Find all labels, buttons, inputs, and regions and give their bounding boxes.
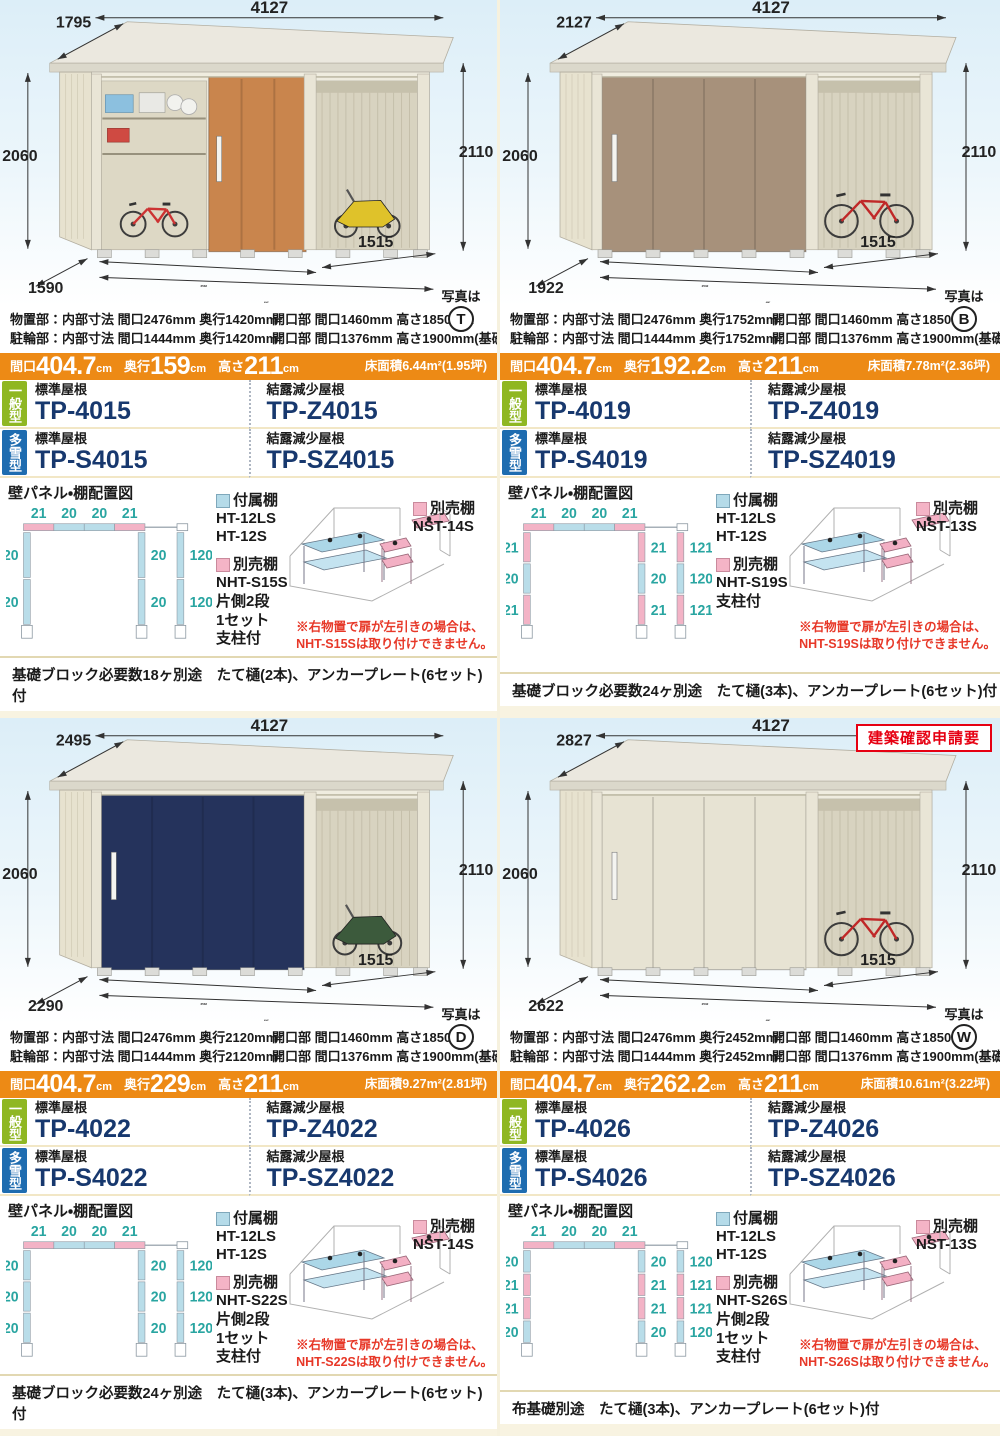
snow-type-badge: 多雪型 (2, 1148, 27, 1193)
optional-shelf-row: 別売棚 (716, 1274, 812, 1292)
panel-layout-diagram: 21202021212021212021121120121 (506, 504, 712, 654)
panel-layout-diagram: 2120202120202020120120 (6, 504, 212, 654)
pink-swatch-icon (916, 1220, 930, 1234)
svg-text:21: 21 (506, 1278, 519, 1294)
spec-block: 物置部：内部寸法 間口2476mm 奥行1420mm開口部 間口1460mm 高… (0, 306, 497, 351)
spec-block: 物置部：内部寸法 間口2476mm 奥行2120mm開口部 間口1460mm 高… (0, 1024, 497, 1069)
snow-type-badge: 多雪型 (502, 430, 527, 475)
depth-label: 奥行 (624, 1074, 650, 1096)
svg-text:20: 20 (651, 1254, 667, 1270)
svg-text:120: 120 (190, 1258, 212, 1274)
optional-side-shelf-legend: 別売棚 NST-13S (916, 500, 996, 537)
floor-area: 床面積6.44m²(1.95坪) (365, 355, 487, 378)
shed-illustration: 41272495206021102532404715152290 (0, 718, 497, 1024)
included-shelf-row: 付属棚 (216, 1210, 312, 1228)
model-snow-dew: 結露減少屋根TP-SZ4015 (249, 429, 498, 478)
svg-text:121: 121 (690, 1301, 712, 1317)
depth-label: 奥行 (624, 356, 650, 378)
svg-text:2532: 2532 (200, 284, 207, 288)
svg-text:21: 21 (531, 505, 547, 521)
optional-shelf-row: 別売棚 (216, 556, 312, 574)
width-unit: cm (596, 1081, 612, 1096)
svg-text:20: 20 (92, 1223, 108, 1239)
svg-text:1515: 1515 (358, 952, 394, 969)
svg-text:4127: 4127 (752, 718, 790, 735)
included-shelf-label: 付属棚 (733, 1210, 778, 1228)
general-type-badge: 一般型 (502, 1099, 527, 1144)
shelf-legend: 付属棚 HT-12LS HT-12S 別売棚 NHT-S19S支柱付 別売棚 N… (716, 480, 996, 656)
shelf-code: HT-12S (216, 528, 312, 547)
config-section: 壁パネル・棚配置図 21202021202020202020120120120 … (0, 1196, 497, 1374)
model-code: TP-4015 (35, 398, 131, 424)
svg-text:121: 121 (690, 1278, 712, 1294)
height-label: 高さ (738, 356, 764, 378)
roof-type-label: 標準屋根 (35, 383, 131, 398)
floor-area: 床面積7.78m²(2.36坪) (868, 355, 990, 378)
svg-text:4047: 4047 (264, 301, 269, 304)
svg-text:2110: 2110 (962, 862, 997, 879)
legend-line: 1セット (716, 1330, 812, 1349)
size-bar: 間口404.7cm 奥行192.2cm 高さ211cm 床面積7.78m²(2.… (500, 353, 1000, 380)
height-unit: cm (283, 1081, 299, 1096)
model-code: TP-SZ4026 (768, 1165, 896, 1191)
roof-type-label: 結露減少屋根 (768, 383, 879, 398)
config-section: 壁パネル・棚配置図 212020212021212020212120120121… (500, 1196, 1000, 1374)
spec-parking-opening: 開口部 間口1376mm 高さ1900mm(基礎天) (272, 330, 500, 349)
svg-text:120: 120 (690, 1324, 712, 1340)
svg-text:21: 21 (506, 602, 519, 618)
optional-shelf-row: 別売棚 (716, 556, 812, 574)
svg-text:2060: 2060 (2, 866, 38, 883)
svg-text:20: 20 (6, 595, 19, 611)
svg-text:4047: 4047 (766, 301, 771, 304)
pink-swatch-icon (413, 502, 427, 516)
svg-text:20: 20 (506, 1254, 519, 1270)
photo-reference: 写真は W (938, 1004, 990, 1050)
model-code: TP-S4019 (535, 447, 648, 473)
spec-block: 物置部：内部寸法 間口2476mm 奥行2452mm開口部 間口1460mm 高… (500, 1024, 1000, 1069)
legend-line: NHT-S22S (216, 1292, 312, 1311)
spec-line-storage: 物置部：内部寸法 間口2476mm 奥行2452mm開口部 間口1460mm 高… (510, 1029, 994, 1048)
photo-ref-label: 写真は (435, 286, 487, 305)
svg-text:20: 20 (592, 1223, 608, 1239)
roof-type-label: 結露減少屋根 (267, 432, 395, 447)
svg-text:2495: 2495 (56, 733, 92, 750)
installation-warning: ※右物置で扉が左引きの場合は、 NHT-S26Sは取り付けできません。 (799, 1337, 996, 1372)
pink-swatch-icon (413, 1220, 427, 1234)
shelf-code: NST-13S (916, 1236, 996, 1255)
spec-storage-inner: 物置部：内部寸法 間口2476mm 奥行1420mm (10, 311, 272, 330)
spec-line-parking: 駐輪部：内部寸法 間口1444mm 奥行2452mm開口部 間口1376mm 高… (510, 1048, 994, 1067)
svg-text:21: 21 (651, 602, 667, 618)
included-shelf-row: 付属棚 (716, 492, 812, 510)
svg-text:120: 120 (690, 1254, 712, 1270)
shelf-code: NST-14S (413, 518, 493, 537)
svg-text:2532: 2532 (702, 284, 709, 288)
product-panel-tp4019: 41272127206021102532404715151922 写真は B 物… (500, 0, 1000, 718)
svg-text:120: 120 (690, 571, 712, 587)
product-photo: 41272127206021102532404715151922 写真は B (500, 0, 1000, 306)
diagram-title: 壁パネル・棚配置図 (506, 480, 716, 504)
general-type-badge: 一般型 (502, 381, 527, 426)
model-code: TP-S4022 (35, 1165, 148, 1191)
legend-line: NHT-S19S (716, 574, 812, 593)
diagram-title: 壁パネル・棚配置図 (6, 1198, 216, 1222)
foundation-note: 基礎ブロック必要数24ヶ別途 たて樋(3本)、アンカープレート(6セット)付 (0, 1374, 497, 1436)
shelf-legend: 付属棚 HT-12LS HT-12S 別売棚 NHT-S22S片側2段1セット支… (216, 1198, 493, 1374)
spec-parking-inner: 駐輪部：内部寸法 間口1444mm 奥行2120mm (10, 1048, 272, 1067)
svg-text:20: 20 (6, 1320, 19, 1336)
svg-text:4127: 4127 (251, 0, 289, 17)
product-panel-tp4026: 41272827206021102532404715152622 建築確認申請要… (500, 718, 1000, 1436)
optional-side-label: 別売棚 (933, 500, 978, 518)
svg-text:20: 20 (92, 505, 108, 521)
svg-text:21: 21 (506, 1301, 519, 1317)
model-general-standard: 一般型 標準屋根TP-4015 (0, 380, 249, 429)
shed-illustration: 41272127206021102532404715151922 (500, 0, 1000, 306)
spec-parking-inner: 駐輪部：内部寸法 間口1444mm 奥行2452mm (510, 1048, 772, 1067)
height-value: 211 (764, 1073, 803, 1096)
photo-ref-label: 写真は (938, 286, 990, 305)
pink-swatch-icon (216, 558, 230, 572)
height-label: 高さ (738, 1074, 764, 1096)
optional-shelf-label: 別売棚 (733, 556, 778, 574)
svg-text:21: 21 (31, 505, 47, 521)
foundation-note: 布基礎別途 たて樋(3本)、アンカープレート(6セット)付 (500, 1390, 1000, 1436)
svg-text:4047: 4047 (264, 1019, 269, 1022)
height-unit: cm (283, 363, 299, 378)
svg-text:20: 20 (561, 1223, 577, 1239)
model-general-dew: 結露減少屋根TP-Z4015 (249, 380, 498, 429)
roof-type-label: 結露減少屋根 (768, 1150, 896, 1165)
svg-text:4127: 4127 (752, 0, 790, 17)
snow-type-badge: 多雪型 (2, 430, 27, 475)
config-section: 壁パネル・棚配置図 2120202120202020120120 付属棚 HT-… (0, 478, 497, 656)
svg-text:4127: 4127 (251, 718, 289, 735)
product-photo: 41272827206021102532404715152622 建築確認申請要… (500, 718, 1000, 1024)
shelf-code: HT-12S (716, 1246, 812, 1265)
blue-swatch-icon (216, 494, 230, 508)
model-grid: 一般型 標準屋根TP-4026 結露減少屋根TP-Z4026 多雪型 標準屋根T… (500, 1098, 1000, 1196)
model-snow-dew: 結露減少屋根TP-SZ4022 (249, 1147, 498, 1196)
width-value: 404.7 (36, 1073, 96, 1096)
model-general-dew: 結露減少屋根TP-Z4019 (750, 380, 1000, 429)
svg-text:21: 21 (651, 540, 667, 556)
spec-line-parking: 駐輪部：内部寸法 間口1444mm 奥行2120mm開口部 間口1376mm 高… (10, 1048, 491, 1067)
depth-unit: cm (710, 363, 726, 378)
svg-text:1515: 1515 (860, 952, 896, 969)
depth-unit: cm (710, 1081, 726, 1096)
svg-text:20: 20 (6, 1289, 19, 1305)
roof-type-label: 結露減少屋根 (768, 1101, 879, 1116)
width-unit: cm (596, 363, 612, 378)
spec-block: 物置部：内部寸法 間口2476mm 奥行1752mm開口部 間口1460mm 高… (500, 306, 1000, 351)
svg-text:21: 21 (122, 1223, 138, 1239)
photo-ref-letter: T (448, 306, 474, 332)
panel-layout-diagram: 21202021202020202020120120120 (6, 1222, 212, 1372)
model-snow-standard: 多雪型 標準屋根TP-S4026 (500, 1147, 750, 1196)
model-snow-standard: 多雪型 標準屋根TP-S4015 (0, 429, 249, 478)
svg-text:2532: 2532 (200, 1002, 207, 1006)
width-value: 404.7 (536, 355, 596, 378)
photo-ref-letter: B (951, 306, 977, 332)
product-photo: 41272495206021102532404715152290 写真は D (0, 718, 497, 1024)
wall-panel-diagram: 壁パネル・棚配置図 21202021202020202020120120120 (6, 1198, 216, 1374)
roof-type-label: 標準屋根 (535, 383, 631, 398)
blue-swatch-icon (716, 1212, 730, 1226)
photo-ref-letter: W (951, 1024, 977, 1050)
model-code: TP-4019 (535, 398, 631, 424)
optional-side-shelf-legend: 別売棚 NST-14S (413, 500, 493, 537)
roof-type-label: 結露減少屋根 (267, 1150, 395, 1165)
blue-swatch-icon (716, 494, 730, 508)
optional-side-row: 別売棚 (916, 500, 996, 518)
legend-line: 支柱付 (716, 1348, 812, 1367)
included-shelf-label: 付属棚 (233, 492, 278, 510)
included-shelf-legend: 付属棚 HT-12LS HT-12S 別売棚 NHT-S26S片側2段1セット支… (716, 1210, 812, 1368)
spec-line-storage: 物置部：内部寸法 間口2476mm 奥行2120mm開口部 間口1460mm 高… (10, 1029, 491, 1048)
model-code: TP-SZ4019 (768, 447, 896, 473)
legend-line: 片側2段 (216, 1311, 312, 1330)
height-label: 高さ (218, 356, 244, 378)
photo-reference: 写真は B (938, 286, 990, 332)
config-section: 壁パネル・棚配置図 21202021212021212021121120121 … (500, 478, 1000, 656)
spec-line-parking: 駐輪部：内部寸法 間口1444mm 奥行1752mm開口部 間口1376mm 高… (510, 330, 994, 349)
product-photo: 41271795206021102532404715151590 写真は T (0, 0, 497, 306)
svg-text:20: 20 (151, 1320, 167, 1336)
svg-text:2127: 2127 (556, 15, 592, 32)
optional-shelf-label: 別売棚 (233, 556, 278, 574)
svg-text:20: 20 (6, 548, 19, 564)
svg-text:20: 20 (561, 505, 577, 521)
svg-text:20: 20 (151, 1258, 167, 1274)
svg-text:2110: 2110 (459, 144, 494, 161)
svg-text:4047: 4047 (766, 1019, 771, 1022)
model-code: TP-4026 (535, 1116, 631, 1142)
wall-panel-diagram: 壁パネル・棚配置図 212020212021212020212120120121… (506, 1198, 716, 1374)
model-code: TP-Z4015 (267, 398, 378, 424)
spec-line-storage: 物置部：内部寸法 間口2476mm 奥行1752mm開口部 間口1460mm 高… (510, 311, 994, 330)
svg-text:20: 20 (651, 571, 667, 587)
depth-value: 262.2 (650, 1073, 710, 1096)
svg-text:1515: 1515 (358, 234, 394, 251)
spec-storage-inner: 物置部：内部寸法 間口2476mm 奥行1752mm (510, 311, 772, 330)
height-unit: cm (803, 1081, 819, 1096)
depth-value: 192.2 (650, 355, 710, 378)
svg-text:20: 20 (506, 1324, 519, 1340)
roof-type-label: 結露減少屋根 (768, 432, 896, 447)
height-value: 211 (244, 1073, 283, 1096)
svg-text:2827: 2827 (556, 733, 592, 750)
optional-shelf-label: 別売棚 (733, 1274, 778, 1292)
shelf-code: HT-12LS (216, 1228, 312, 1247)
snow-type-badge: 多雪型 (502, 1148, 527, 1193)
optional-side-row: 別売棚 (916, 1218, 996, 1236)
foundation-note: 基礎ブロック必要数24ヶ別途 たて樋(3本)、アンカープレート(6セット)付 (500, 672, 1000, 718)
depth-value: 229 (150, 1073, 190, 1096)
size-bar: 間口404.7cm 奥行262.2cm 高さ211cm 床面積10.61m²(3… (500, 1071, 1000, 1098)
model-code: TP-Z4022 (267, 1116, 378, 1142)
optional-side-row: 別売棚 (413, 1218, 493, 1236)
svg-text:121: 121 (690, 602, 712, 618)
optional-side-label: 別売棚 (430, 1218, 475, 1236)
foundation-note: 基礎ブロック必要数18ヶ別途 たて樋(2本)、アンカープレート(6セット)付 (0, 656, 497, 718)
shelf-code: HT-12S (716, 528, 812, 547)
svg-text:1515: 1515 (860, 234, 896, 251)
model-snow-standard: 多雪型 標準屋根TP-S4019 (500, 429, 750, 478)
shelf-legend: 付属棚 HT-12LS HT-12S 別売棚 NHT-S15S片側2段1セット支… (216, 480, 493, 656)
optional-side-label: 別売棚 (430, 500, 475, 518)
svg-text:20: 20 (151, 548, 167, 564)
legend-line: 片側2段 (216, 593, 312, 612)
model-general-dew: 結露減少屋根TP-Z4026 (750, 1098, 1000, 1147)
photo-ref-label: 写真は (435, 1004, 487, 1023)
legend-line: NHT-S15S (216, 574, 312, 593)
roof-type-label: 標準屋根 (535, 1101, 631, 1116)
roof-type-label: 結露減少屋根 (267, 383, 378, 398)
photo-reference: 写真は T (435, 286, 487, 332)
height-value: 211 (764, 355, 803, 378)
height-unit: cm (803, 363, 819, 378)
svg-text:20: 20 (6, 1258, 19, 1274)
spec-parking-opening: 開口部 間口1376mm 高さ1900mm(基礎天) (272, 1048, 500, 1067)
svg-text:120: 120 (190, 1320, 212, 1336)
legend-line: NHT-S26S (716, 1292, 812, 1311)
depth-unit: cm (190, 1081, 206, 1096)
general-type-badge: 一般型 (2, 1099, 27, 1144)
svg-text:1922: 1922 (528, 280, 564, 297)
shed-illustration: 41272827206021102532404715152622 (500, 718, 1000, 1024)
model-general-standard: 一般型 標準屋根TP-4022 (0, 1098, 249, 1147)
svg-text:2290: 2290 (28, 998, 64, 1015)
diagram-title: 壁パネル・棚配置図 (506, 1198, 716, 1222)
catalog-page: 41271795206021102532404715151590 写真は T 物… (0, 0, 1000, 1436)
svg-text:20: 20 (151, 1289, 167, 1305)
optional-side-shelf-legend: 別売棚 NST-14S (413, 1218, 493, 1255)
svg-text:121: 121 (690, 540, 712, 556)
model-general-standard: 一般型 標準屋根TP-4019 (500, 380, 750, 429)
height-value: 211 (244, 355, 283, 378)
model-grid: 一般型 標準屋根TP-4015 結露減少屋根TP-Z4015 多雪型 標準屋根T… (0, 380, 497, 478)
spec-parking-opening: 開口部 間口1376mm 高さ1900mm(基礎天) (772, 1048, 1000, 1067)
width-unit: cm (96, 1081, 112, 1096)
depth-label: 奥行 (124, 1074, 150, 1096)
svg-text:20: 20 (151, 595, 167, 611)
svg-text:21: 21 (506, 540, 519, 556)
included-shelf-row: 付属棚 (216, 492, 312, 510)
svg-text:2622: 2622 (528, 998, 564, 1015)
included-shelf-legend: 付属棚 HT-12LS HT-12S 別売棚 NHT-S19S支柱付 (716, 492, 812, 612)
size-bar: 間口404.7cm 奥行159cm 高さ211cm 床面積6.44m²(1.95… (0, 353, 497, 380)
blue-swatch-icon (216, 1212, 230, 1226)
building-permit-badge: 建築確認申請要 (856, 724, 992, 752)
model-snow-dew: 結露減少屋根TP-SZ4026 (750, 1147, 1000, 1196)
svg-text:21: 21 (122, 505, 138, 521)
optional-side-label: 別売棚 (933, 1218, 978, 1236)
svg-text:1795: 1795 (56, 15, 92, 32)
model-code: TP-Z4019 (768, 398, 879, 424)
svg-text:2110: 2110 (459, 862, 494, 879)
included-shelf-label: 付属棚 (233, 1210, 278, 1228)
product-panel-tp4022: 41272495206021102532404715152290 写真は D 物… (0, 718, 500, 1436)
depth-label: 奥行 (124, 356, 150, 378)
shelf-code: NST-14S (413, 1236, 493, 1255)
wall-panel-diagram: 壁パネル・棚配置図 21202021212021212021121120121 (506, 480, 716, 656)
model-code: TP-4022 (35, 1116, 131, 1142)
pink-swatch-icon (716, 558, 730, 572)
shelf-code: HT-12LS (216, 510, 312, 529)
model-general-standard: 一般型 標準屋根TP-4026 (500, 1098, 750, 1147)
shed-illustration: 41271795206021102532404715151590 (0, 0, 497, 306)
model-general-dew: 結露減少屋根TP-Z4022 (249, 1098, 498, 1147)
svg-text:2060: 2060 (502, 148, 538, 165)
depth-value: 159 (150, 355, 190, 378)
depth-unit: cm (190, 363, 206, 378)
model-code: TP-Z4026 (768, 1116, 879, 1142)
svg-text:20: 20 (651, 1324, 667, 1340)
model-code: TP-S4026 (535, 1165, 648, 1191)
spec-parking-inner: 駐輪部：内部寸法 間口1444mm 奥行1752mm (510, 330, 772, 349)
model-snow-dew: 結露減少屋根TP-SZ4019 (750, 429, 1000, 478)
svg-text:21: 21 (622, 1223, 638, 1239)
model-snow-standard: 多雪型 標準屋根TP-S4022 (0, 1147, 249, 1196)
optional-side-row: 別売棚 (413, 500, 493, 518)
spec-parking-inner: 駐輪部：内部寸法 間口1444mm 奥行1420mm (10, 330, 272, 349)
svg-text:120: 120 (190, 1289, 212, 1305)
legend-line: 片側2段 (716, 1311, 812, 1330)
photo-ref-letter: D (448, 1024, 474, 1050)
optional-shelf-lines: NHT-S19S支柱付 (716, 574, 812, 612)
shelf-code: NST-13S (916, 518, 996, 537)
svg-text:20: 20 (592, 505, 608, 521)
width-value: 404.7 (536, 1073, 596, 1096)
pink-swatch-icon (716, 1276, 730, 1290)
width-value: 404.7 (36, 355, 96, 378)
spec-storage-inner: 物置部：内部寸法 間口2476mm 奥行2120mm (10, 1029, 272, 1048)
legend-line: 支柱付 (716, 593, 812, 612)
svg-text:2060: 2060 (502, 866, 538, 883)
svg-text:1590: 1590 (28, 280, 64, 297)
product-panel-tp4015: 41271795206021102532404715151590 写真は T 物… (0, 0, 500, 718)
spec-parking-opening: 開口部 間口1376mm 高さ1900mm(基礎天) (772, 330, 1000, 349)
model-code: TP-SZ4022 (267, 1165, 395, 1191)
installation-warning: ※右物置で扉が左引きの場合は、 NHT-S15Sは取り付けできません。 (296, 619, 493, 654)
pink-swatch-icon (216, 1276, 230, 1290)
model-code: TP-S4015 (35, 447, 148, 473)
model-code: TP-SZ4015 (267, 447, 395, 473)
width-label: 間口 (10, 1074, 36, 1096)
height-label: 高さ (218, 1074, 244, 1096)
svg-text:120: 120 (190, 548, 212, 564)
svg-text:21: 21 (651, 1278, 667, 1294)
svg-text:120: 120 (190, 595, 212, 611)
width-label: 間口 (510, 1074, 536, 1096)
pink-swatch-icon (916, 502, 930, 516)
included-shelf-row: 付属棚 (716, 1210, 812, 1228)
panel-layout-diagram: 212020212021212020212120120121121120 (506, 1222, 712, 1372)
installation-warning: ※右物置で扉が左引きの場合は、 NHT-S19Sは取り付けできません。 (799, 619, 996, 654)
included-shelf-label: 付属棚 (733, 492, 778, 510)
floor-area: 床面積10.61m²(3.22坪) (861, 1073, 990, 1096)
width-label: 間口 (10, 356, 36, 378)
roof-type-label: 結露減少屋根 (267, 1101, 378, 1116)
roof-type-label: 標準屋根 (35, 1101, 131, 1116)
photo-ref-label: 写真は (938, 1004, 990, 1023)
roof-type-label: 標準屋根 (535, 432, 648, 447)
optional-shelf-row: 別売棚 (216, 1274, 312, 1292)
wall-panel-diagram: 壁パネル・棚配置図 2120202120202020120120 (6, 480, 216, 656)
model-grid: 一般型 標準屋根TP-4022 結露減少屋根TP-Z4022 多雪型 標準屋根T… (0, 1098, 497, 1196)
